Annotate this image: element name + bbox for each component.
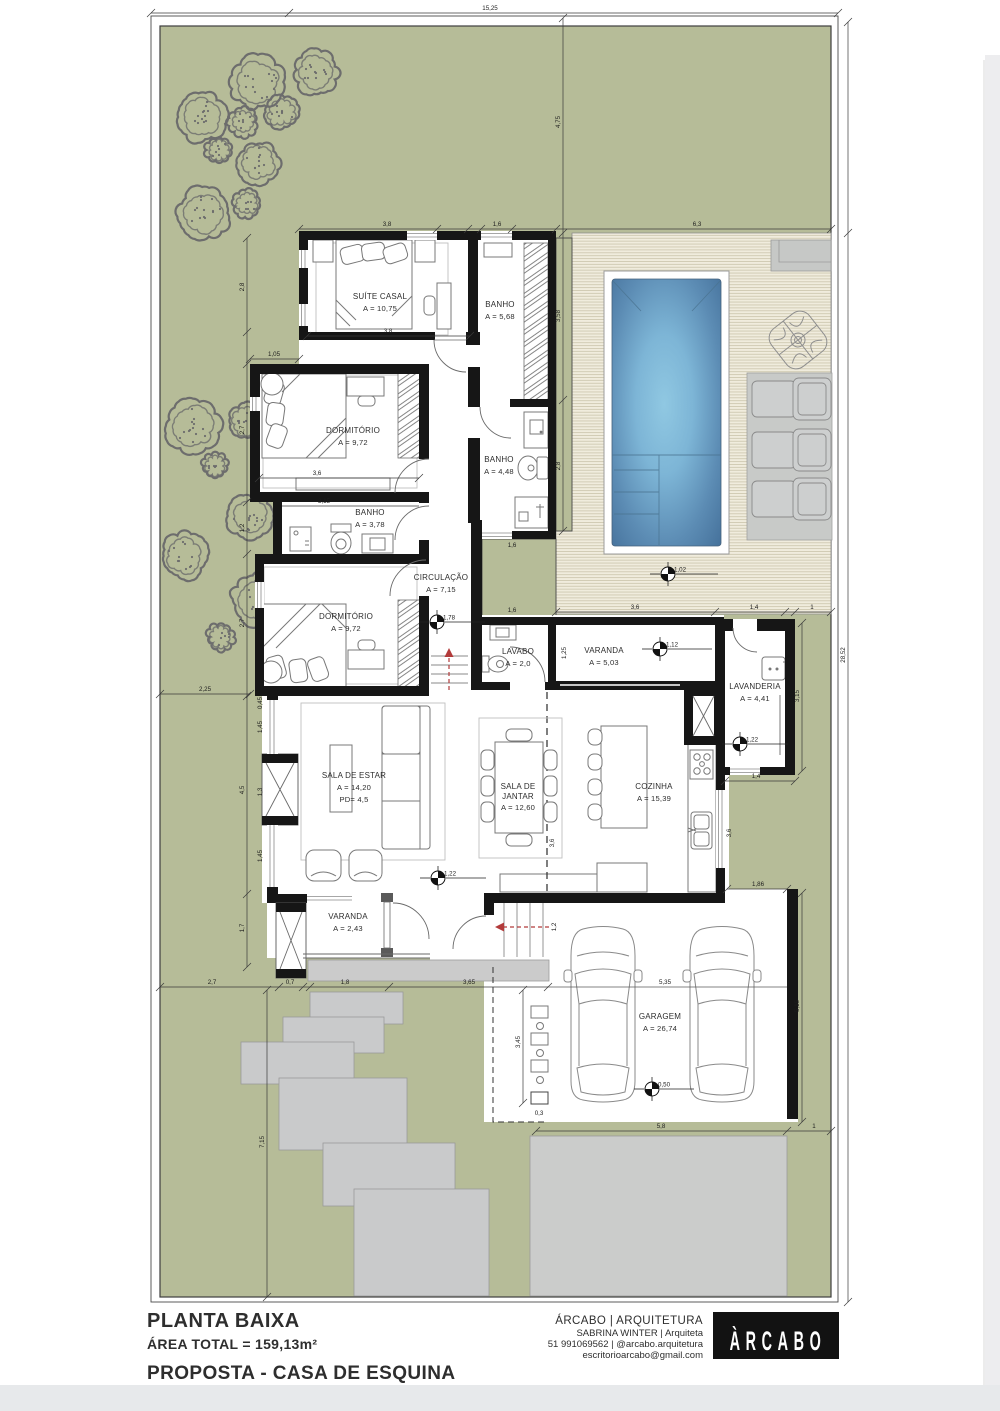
- svg-text:6,3: 6,3: [693, 221, 702, 228]
- svg-text:A = 2,0: A = 2,0: [505, 659, 530, 668]
- svg-text:1,02: 1,02: [674, 567, 687, 574]
- svg-text:2,7: 2,7: [208, 979, 217, 986]
- svg-text:15,25: 15,25: [482, 5, 498, 12]
- svg-text:1,22: 1,22: [746, 737, 759, 744]
- svg-text:2,25: 2,25: [199, 686, 212, 693]
- svg-text:0,3: 0,3: [535, 1110, 544, 1117]
- svg-text:A = 9,72: A = 9,72: [331, 624, 361, 633]
- svg-text:JANTAR: JANTAR: [502, 792, 534, 801]
- svg-text:A = 2,43: A = 2,43: [333, 924, 363, 933]
- svg-text:3,6: 3,6: [313, 470, 322, 477]
- svg-text:BANHO: BANHO: [484, 455, 513, 464]
- svg-text:3,15: 3,15: [318, 498, 331, 505]
- svg-text:1,4: 1,4: [750, 604, 759, 611]
- svg-text:1,6: 1,6: [508, 542, 517, 549]
- svg-text:A = 26,74: A = 26,74: [643, 1024, 677, 1033]
- svg-text:COZINHA: COZINHA: [635, 782, 673, 791]
- svg-text:2,8: 2,8: [555, 461, 562, 470]
- svg-text:1,3: 1,3: [257, 787, 264, 796]
- svg-text:1,45: 1,45: [257, 849, 264, 862]
- svg-text:1,22: 1,22: [444, 871, 457, 878]
- svg-text:A = 14,20: A = 14,20: [337, 783, 371, 792]
- svg-text:1,78: 1,78: [443, 615, 456, 622]
- svg-text:A = 7,15: A = 7,15: [426, 585, 456, 594]
- svg-text:1: 1: [812, 1123, 816, 1130]
- svg-text:SUÍTE CASAL: SUÍTE CASAL: [353, 292, 408, 301]
- svg-text:5,35: 5,35: [659, 979, 672, 986]
- svg-text:ÁRCABO | ARQUITETURA: ÁRCABO | ARQUITETURA: [555, 1314, 703, 1327]
- svg-text:PLANTA BAIXA: PLANTA BAIXA: [147, 1310, 300, 1332]
- svg-text:3,65: 3,65: [463, 979, 476, 986]
- svg-text:A = 12,60: A = 12,60: [501, 803, 535, 812]
- svg-text:1,2: 1,2: [551, 922, 558, 931]
- svg-text:1: 1: [810, 604, 814, 611]
- svg-text:1,25: 1,25: [561, 646, 568, 659]
- svg-text:4,5: 4,5: [239, 785, 246, 794]
- svg-text:PROPOSTA - CASA DE ESQUINA: PROPOSTA - CASA DE ESQUINA: [147, 1363, 455, 1384]
- svg-text:DORMITÓRIO: DORMITÓRIO: [319, 612, 373, 621]
- svg-text:1,4: 1,4: [752, 773, 761, 780]
- svg-text:2,7: 2,7: [239, 425, 246, 434]
- svg-text:ÀRCABO: ÀRCABO: [730, 1325, 827, 1356]
- svg-text:1,86: 1,86: [752, 881, 765, 888]
- svg-text:51 991069562 | @arcabo.arquite: 51 991069562 | @arcabo.arquitetura: [548, 1339, 704, 1350]
- svg-text:LAVANDERIA: LAVANDERIA: [729, 682, 781, 691]
- svg-text:DORMITÓRIO: DORMITÓRIO: [326, 426, 380, 435]
- svg-text:SALA DE ESTAR: SALA DE ESTAR: [322, 771, 386, 780]
- svg-text:A = 4,41: A = 4,41: [740, 694, 770, 703]
- svg-text:A = 5,03: A = 5,03: [589, 658, 619, 667]
- svg-text:A = 10,75: A = 10,75: [363, 304, 397, 313]
- svg-text:1,2: 1,2: [239, 523, 246, 532]
- svg-text:1,7: 1,7: [239, 923, 246, 932]
- svg-text:1,6: 1,6: [493, 221, 502, 228]
- svg-text:1,6: 1,6: [508, 607, 517, 614]
- svg-text:28,52: 28,52: [840, 647, 847, 663]
- svg-text:SABRINA WINTER | Arquiteta: SABRINA WINTER | Arquiteta: [576, 1328, 703, 1339]
- svg-text:2,8: 2,8: [239, 282, 246, 291]
- svg-text:3,45: 3,45: [515, 1035, 522, 1048]
- svg-text:5,8: 5,8: [657, 1123, 666, 1130]
- svg-text:1,12: 1,12: [666, 642, 679, 649]
- svg-text:BANHO: BANHO: [355, 508, 384, 517]
- svg-text:BANHO: BANHO: [485, 300, 514, 309]
- svg-text:3,8: 3,8: [384, 328, 393, 335]
- svg-text:VARANDA: VARANDA: [328, 912, 368, 921]
- svg-text:A = 5,68: A = 5,68: [485, 312, 515, 321]
- svg-text:1,05: 1,05: [268, 351, 281, 358]
- svg-text:SALA DE: SALA DE: [501, 782, 536, 791]
- svg-text:escritorioarcabo@gmail.com: escritorioarcabo@gmail.com: [582, 1350, 703, 1361]
- svg-text:GARAGEM: GARAGEM: [639, 1012, 681, 1021]
- svg-text:1,8: 1,8: [341, 979, 350, 986]
- svg-text:3,6: 3,6: [631, 604, 640, 611]
- svg-text:A = 15,39: A = 15,39: [637, 794, 671, 803]
- svg-text:A = 4,48: A = 4,48: [484, 467, 514, 476]
- svg-text:4,75: 4,75: [555, 115, 562, 128]
- svg-text:3,8: 3,8: [383, 221, 392, 228]
- svg-text:1,45: 1,45: [257, 720, 264, 733]
- svg-text:0,7: 0,7: [286, 979, 295, 986]
- svg-text:3,58: 3,58: [555, 309, 562, 322]
- svg-text:7,15: 7,15: [259, 1135, 266, 1148]
- svg-text:3,6: 3,6: [549, 838, 556, 847]
- svg-text:0,45: 0,45: [257, 696, 264, 709]
- svg-text:A = 9,72: A = 9,72: [338, 438, 368, 447]
- svg-text:0,50: 0,50: [658, 1082, 671, 1089]
- svg-text:ÁREA TOTAL = 159,13m²: ÁREA TOTAL = 159,13m²: [147, 1336, 317, 1352]
- svg-text:2,7: 2,7: [239, 618, 246, 627]
- svg-text:5,15: 5,15: [794, 999, 801, 1012]
- svg-text:PD= 4,5: PD= 4,5: [339, 795, 368, 804]
- svg-text:VARANDA: VARANDA: [584, 646, 624, 655]
- svg-text:CIRCULAÇÃO: CIRCULAÇÃO: [414, 573, 468, 582]
- svg-text:3,6: 3,6: [726, 828, 733, 837]
- svg-text:A = 3,78: A = 3,78: [355, 520, 385, 529]
- svg-text:LAVABO: LAVABO: [502, 647, 534, 656]
- svg-text:3,15: 3,15: [794, 689, 801, 702]
